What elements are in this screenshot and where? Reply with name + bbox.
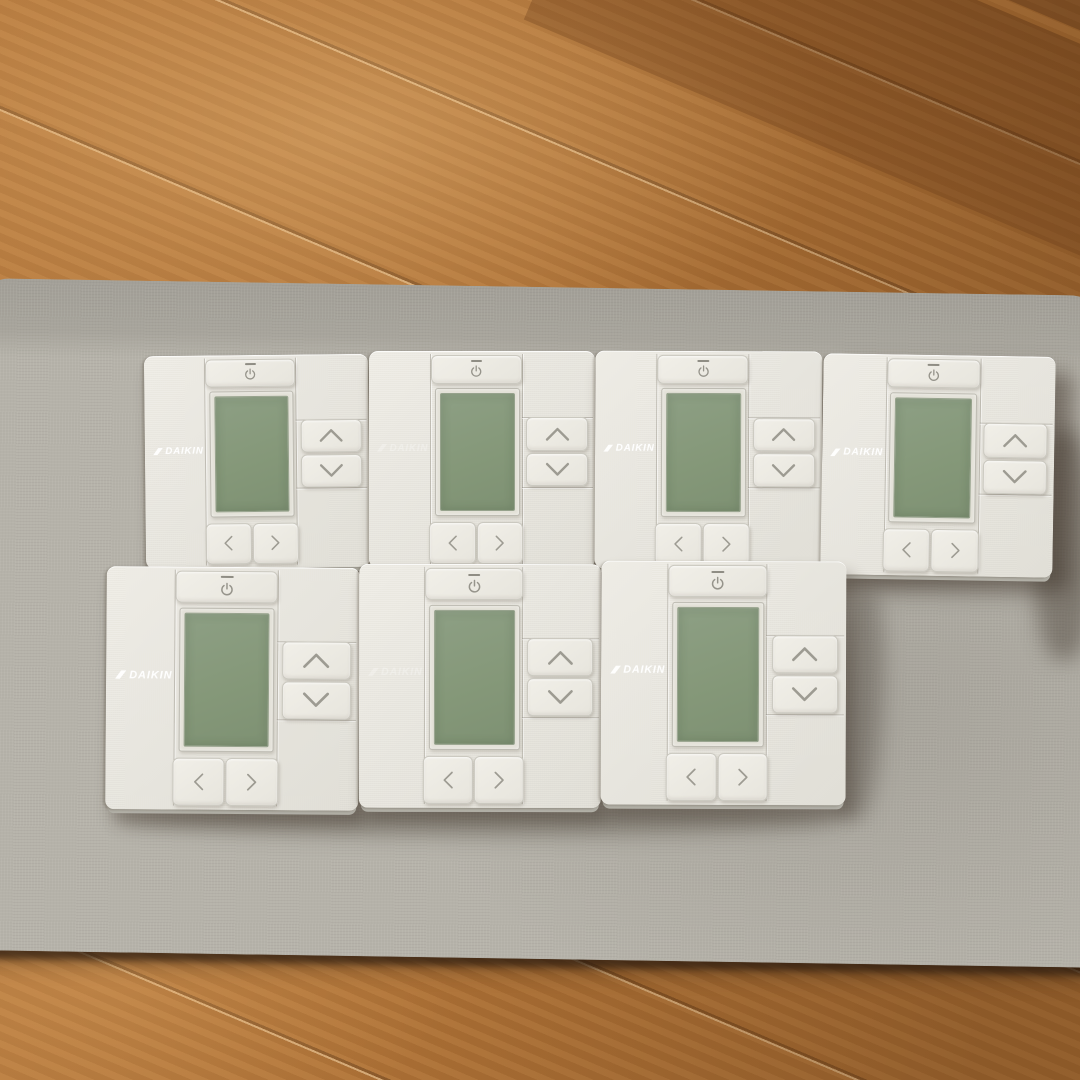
chevron-left-icon (901, 542, 911, 559)
chevron-left-icon (674, 536, 683, 552)
power-led-slot (697, 360, 709, 362)
power-led-slot (711, 570, 724, 572)
power-icon (925, 367, 942, 384)
down-button[interactable] (527, 678, 593, 716)
daikin-logo-text: DAIKIN (843, 447, 883, 459)
daikin-mark-icon (830, 448, 840, 456)
panel-seam (522, 717, 598, 718)
power-led-slot (220, 576, 233, 578)
panel-seam (296, 487, 367, 489)
up-button[interactable] (527, 638, 593, 676)
power-icon (708, 574, 727, 593)
lcd-screen (893, 397, 972, 519)
daikin-mark-icon (377, 444, 387, 452)
controller-2: DAIKIN (369, 351, 595, 568)
power-button[interactable] (205, 359, 295, 388)
power-button[interactable] (668, 565, 767, 597)
chevron-left-icon (443, 771, 454, 789)
daikin-logo-text: DAIKIN (165, 446, 203, 457)
daikin-logo: DAIKIN (153, 446, 204, 458)
daikin-mark-icon (610, 666, 621, 674)
controller-6: DAIKIN (359, 564, 601, 808)
lcd-screen (666, 393, 742, 512)
right-button[interactable] (717, 753, 768, 801)
power-button[interactable] (431, 355, 522, 384)
daikin-logo: DAIKIN (368, 667, 423, 678)
lcd-frame (672, 602, 765, 747)
power-icon (465, 577, 484, 596)
daikin-logo: DAIKIN (377, 443, 428, 454)
power-led-slot (468, 573, 480, 575)
chevron-right-icon (271, 535, 280, 551)
daikin-mark-icon (603, 444, 613, 452)
power-icon (468, 363, 484, 379)
controller-1: DAIKIN (144, 354, 370, 569)
power-button[interactable] (176, 571, 278, 604)
chevron-down-icon (302, 692, 330, 709)
power-led-slot (245, 363, 256, 365)
photo-daikin-remote-controllers: DAIKIN (0, 0, 1080, 1080)
power-icon (242, 366, 258, 382)
power-led-slot (471, 360, 483, 362)
up-button[interactable] (753, 418, 815, 452)
right-button[interactable] (226, 758, 278, 806)
controller-5: DAIKIN (105, 566, 360, 811)
chevron-up-icon (547, 650, 574, 666)
down-button[interactable] (301, 454, 362, 488)
power-icon (218, 580, 237, 599)
daikin-logo-text: DAIKIN (129, 669, 172, 681)
left-button[interactable] (882, 528, 930, 572)
lcd-screen (677, 607, 760, 742)
lcd-frame (179, 608, 275, 752)
power-button[interactable] (657, 355, 748, 384)
down-button[interactable] (983, 459, 1047, 494)
down-button[interactable] (753, 453, 815, 487)
chevron-down-icon (1002, 469, 1028, 484)
lcd-frame (661, 388, 747, 517)
lcd-screen (434, 610, 515, 744)
controller-4: DAIKIN (820, 353, 1055, 578)
down-button[interactable] (771, 675, 838, 713)
left-button[interactable] (429, 522, 476, 564)
chevron-down-icon (547, 689, 574, 705)
chevron-right-icon (737, 768, 748, 786)
daikin-logo: DAIKIN (115, 669, 172, 681)
chevron-down-icon (771, 463, 796, 478)
daikin-logo-text: DAIKIN (381, 667, 422, 678)
right-button[interactable] (477, 522, 524, 564)
lcd-frame (888, 392, 977, 524)
down-button[interactable] (282, 681, 351, 719)
right-button[interactable] (931, 529, 979, 573)
daikin-logo-text: DAIKIN (616, 443, 655, 454)
daikin-mark-icon (153, 448, 163, 456)
power-led-slot (928, 363, 940, 365)
right-button[interactable] (252, 522, 299, 564)
left-button[interactable] (423, 756, 473, 804)
right-button[interactable] (474, 756, 524, 804)
chevron-right-icon (721, 536, 730, 552)
left-button[interactable] (205, 523, 252, 565)
chevron-right-icon (494, 771, 505, 789)
panel-seam (766, 714, 843, 715)
chevron-up-icon (545, 427, 570, 442)
power-button[interactable] (887, 358, 981, 388)
chevron-up-icon (1002, 433, 1028, 448)
chevron-left-icon (686, 768, 697, 786)
up-button[interactable] (526, 417, 587, 451)
panel-seam (277, 719, 357, 721)
chevron-up-icon (303, 652, 331, 669)
panel-seam (522, 487, 593, 488)
chevron-right-icon (246, 773, 257, 791)
chevron-down-icon (319, 463, 344, 478)
chevron-left-icon (448, 535, 457, 551)
right-button[interactable] (703, 523, 750, 566)
chevron-right-icon (950, 542, 960, 559)
left-button[interactable] (172, 758, 224, 806)
chevron-left-icon (224, 536, 233, 552)
lcd-screen (214, 396, 289, 513)
lcd-frame (209, 391, 295, 518)
daikin-logo-text: DAIKIN (623, 664, 665, 676)
chevron-up-icon (791, 647, 818, 663)
chevron-left-icon (193, 773, 204, 791)
daikin-mark-icon (368, 668, 379, 676)
daikin-logo: DAIKIN (610, 664, 666, 676)
chevron-down-icon (791, 687, 818, 703)
left-button[interactable] (666, 753, 717, 801)
chevron-right-icon (495, 535, 504, 551)
up-button[interactable] (772, 636, 839, 674)
lcd-screen (184, 613, 270, 747)
up-button[interactable] (282, 641, 351, 679)
chevron-up-icon (319, 428, 344, 443)
up-button[interactable] (984, 423, 1048, 458)
up-button[interactable] (300, 419, 361, 453)
left-button[interactable] (655, 522, 702, 565)
lcd-screen (440, 393, 515, 511)
lcd-frame (429, 605, 520, 749)
panel-seam (748, 488, 820, 489)
controller-7: DAIKIN (601, 561, 847, 806)
lcd-frame (435, 388, 520, 516)
down-button[interactable] (526, 453, 587, 487)
daikin-logo-text: DAIKIN (390, 443, 429, 454)
controller-3: DAIKIN (595, 351, 823, 570)
daikin-logo: DAIKIN (830, 447, 883, 459)
daikin-mark-icon (115, 671, 126, 680)
chevron-up-icon (771, 427, 796, 442)
power-button[interactable] (425, 568, 522, 600)
chevron-down-icon (545, 462, 570, 477)
daikin-logo: DAIKIN (603, 443, 654, 454)
power-icon (695, 363, 712, 380)
